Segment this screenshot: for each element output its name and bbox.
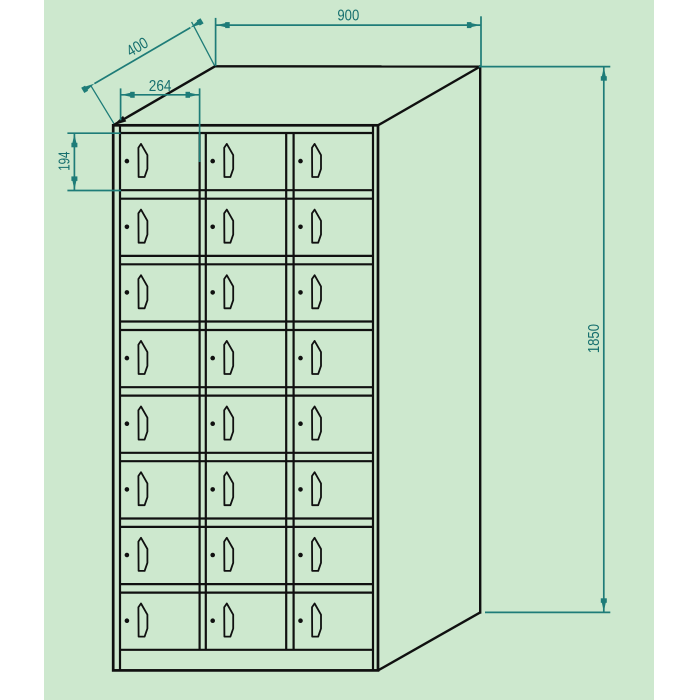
svg-text:1850: 1850 bbox=[586, 324, 603, 353]
svg-text:900: 900 bbox=[337, 7, 359, 24]
svg-text:194: 194 bbox=[55, 151, 73, 170]
svg-text:264: 264 bbox=[149, 78, 172, 95]
